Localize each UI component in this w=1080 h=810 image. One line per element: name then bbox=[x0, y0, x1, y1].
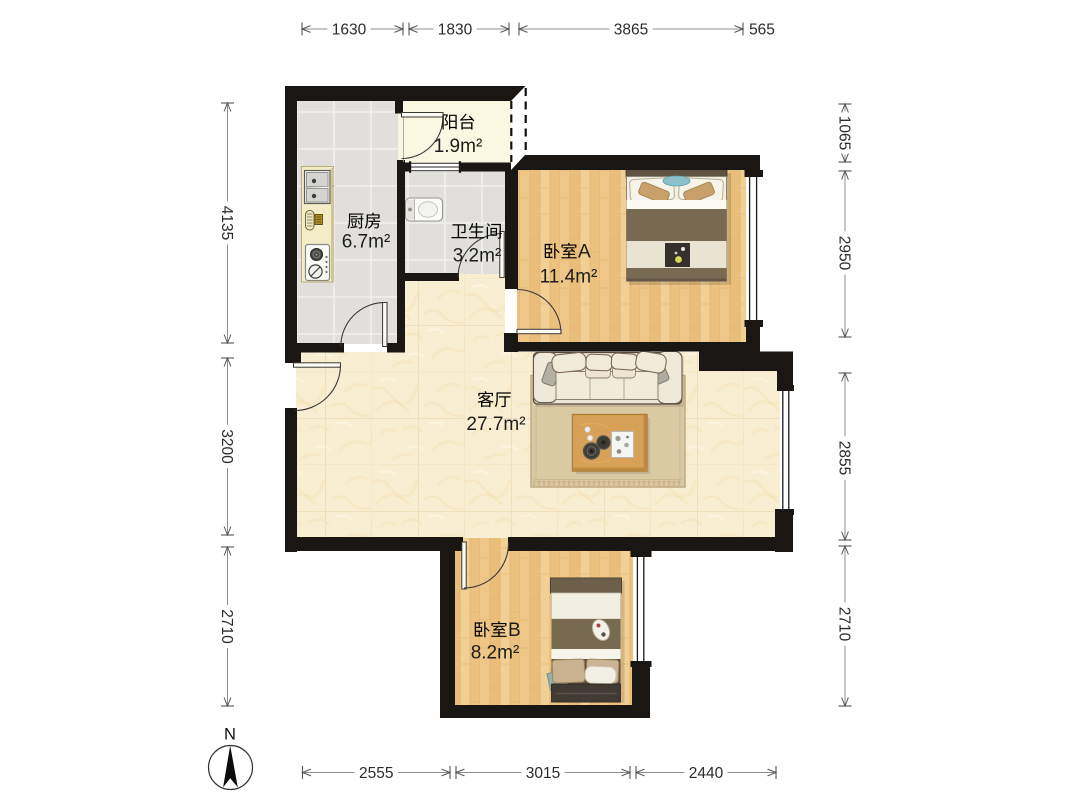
svg-text:3865: 3865 bbox=[614, 22, 648, 39]
svg-text:27.7m²: 27.7m² bbox=[466, 414, 525, 435]
svg-text:B: B bbox=[508, 620, 521, 641]
svg-text:2710: 2710 bbox=[218, 609, 235, 644]
svg-text:3200: 3200 bbox=[218, 429, 235, 464]
svg-text:6.7m²: 6.7m² bbox=[342, 232, 391, 253]
svg-text:2950: 2950 bbox=[836, 236, 853, 271]
svg-text:1065: 1065 bbox=[836, 116, 853, 150]
svg-text:N: N bbox=[224, 726, 236, 744]
svg-text:1.9m²: 1.9m² bbox=[434, 136, 483, 157]
svg-text:1830: 1830 bbox=[438, 22, 473, 39]
svg-text:3015: 3015 bbox=[526, 765, 560, 782]
svg-text:2440: 2440 bbox=[689, 765, 724, 782]
svg-text:1630: 1630 bbox=[332, 22, 367, 39]
svg-text:2855: 2855 bbox=[836, 441, 853, 475]
svg-text:3.2m²: 3.2m² bbox=[453, 246, 502, 267]
svg-text:11.4m²: 11.4m² bbox=[540, 267, 598, 288]
svg-text:8.2m²: 8.2m² bbox=[471, 643, 520, 664]
svg-text:565: 565 bbox=[749, 22, 775, 39]
svg-text:4135: 4135 bbox=[218, 206, 235, 240]
svg-text:A: A bbox=[578, 242, 591, 263]
svg-text:2555: 2555 bbox=[359, 765, 393, 782]
svg-text:2710: 2710 bbox=[836, 607, 853, 642]
